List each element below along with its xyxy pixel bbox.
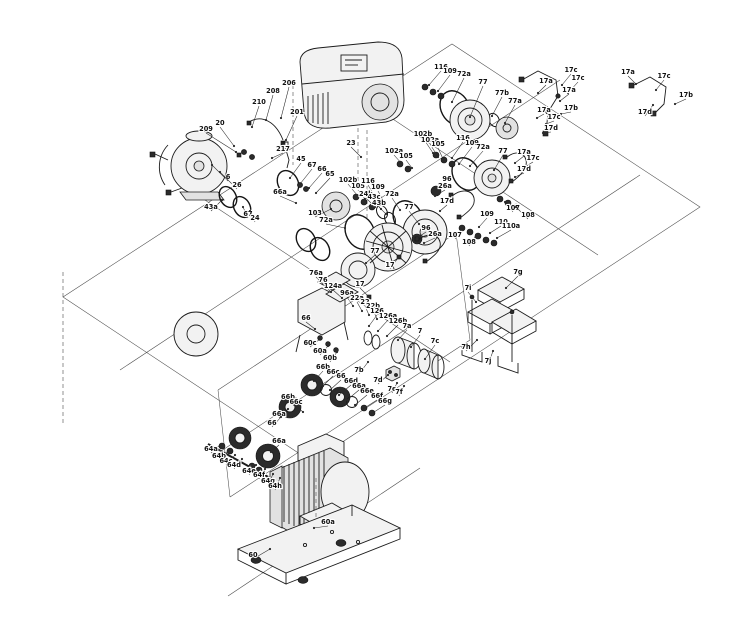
part-number-label: 26 [232,181,242,189]
part-callout-17a: 17a [621,68,637,85]
part-callout-17d: 17d [542,124,558,134]
part-number-label: 107 [448,231,462,239]
part-number-label: 43a [204,203,218,211]
part-number-label: 60 [248,551,258,559]
part-callout-208: 208 [265,87,280,121]
part-number-label: 66a [273,188,287,196]
part-number-label: 17b [679,91,693,99]
part-number-label: 7d [373,376,383,384]
part-number-label: 17c [526,154,539,162]
part-number-label: 66c [289,398,302,406]
part-callout-105: 105 [431,140,445,162]
part-number-label: 66 [267,419,277,427]
part-number-label: 66a [272,437,286,445]
part-number-label: 7c [431,337,440,345]
part-number-label: 109 [480,210,494,218]
part-number-label: 23 [346,139,356,147]
part-callout-66a: 66a [273,188,297,204]
part-number-label: 77a [508,97,522,105]
part-callout-7i: 7i [465,284,478,303]
part-number-label: 72a [319,216,333,224]
part-number-label: 108 [521,211,535,219]
part-number-label: 109 [371,183,385,191]
part-number-label: 17c [564,66,577,74]
part-number-label: 77 [498,147,508,155]
part-number-label: 24 [250,214,260,222]
alignment-frame-lines [63,44,700,596]
part-number-label: 17a [621,68,635,76]
part-number-label: 17 [385,261,395,269]
part-number-label: 17 [355,280,365,288]
part-number-label: 77 [478,78,488,86]
part-callout-24: 24 [249,210,260,222]
part-callout-23: 23 [346,139,362,158]
part-callout-67: 67 [299,161,317,185]
part-number-label: 7f [395,388,403,396]
part-callout-17a: 17a [537,77,553,94]
part-number-label: 17c [571,74,584,82]
part-callout-65: 65 [315,170,335,194]
part-number-label: 77 [404,203,414,211]
part-callout-72a: 72a [385,190,401,211]
part-number-label: 17d [544,124,558,132]
part-number-label: 17b [564,104,578,112]
part-number-label: 7i [465,284,472,292]
part-number-label: 43b [372,199,386,207]
motor-control-head [300,42,404,128]
coupling-guards [462,277,536,373]
part-callouts: 206208210209202012176264567666566a10372a… [199,63,693,559]
part-number-label: 65 [325,170,335,178]
part-number-label: 110a [502,222,520,230]
part-number-label: 217 [276,145,290,153]
part-number-label: 107 [506,204,520,212]
part-callout-17d: 17d [638,104,654,116]
part-callout-210: 210 [251,98,266,128]
part-number-label: 7b [354,366,364,374]
part-callout-201: 201 [285,108,304,141]
part-number-label: 17a [562,86,576,94]
part-number-label: 105 [399,152,413,160]
part-number-label: 17c [657,72,670,80]
part-number-label: 60a [321,518,335,526]
part-number-label: 77 [370,247,380,255]
part-number-label: 201 [290,108,304,116]
part-number-label: 17c [547,113,560,121]
part-callout-17d: 17d [514,165,531,178]
part-callout-7h: 7h [461,339,478,351]
part-number-label: 7h [461,343,471,351]
part-callout-17a: 17a [559,86,576,102]
part-callout-109: 109 [478,210,494,228]
part-number-label: 64h [268,482,282,490]
part-number-label: 6 [226,173,231,181]
part-number-label: 45 [296,155,306,163]
part-number-label: 209 [199,125,213,133]
part-callout-7f: 7f [395,385,405,396]
part-callout-45: 45 [289,155,306,179]
part-callout-7b: 7b [354,361,369,374]
part-number-label: 26a [428,230,442,238]
part-number-label: 26a [438,182,452,190]
part-number-label: 17a [539,77,553,85]
part-number-label: 109 [443,67,457,75]
exploded-parts-diagram: 206208210209202012176264567666566a10372a… [0,0,752,632]
part-callout-17d: 17d [439,197,454,212]
part-number-label: 7 [418,327,423,335]
part-callout-217: 217 [271,145,290,159]
part-number-label: 72a [385,190,399,198]
pump-housing [150,119,289,200]
part-number-label: 66 [301,314,311,322]
part-number-label: 64d [227,461,241,469]
part-number-label: 20 [215,119,225,127]
part-callout-20: 20 [215,119,235,147]
part-number-label: 72a [457,70,471,78]
part-callout-77b: 77b [491,89,509,117]
part-number-label: 7g [513,268,523,276]
part-number-label: 105 [431,140,445,148]
part-number-label: 7a [402,322,411,330]
part-number-label: 108 [462,238,476,246]
part-number-label: 208 [266,87,280,95]
part-callout-17b: 17b [674,91,693,105]
part-number-label: 7j [485,357,492,365]
part-callout-7j: 7j [485,350,495,365]
part-number-label: 67 [307,161,317,169]
part-number-label: 77b [495,89,509,97]
part-number-label: 66g [378,397,392,405]
part-number-label: 17d [440,197,454,205]
part-number-label: 17d [517,165,531,173]
part-number-label: 66a [272,410,286,418]
part-callout-17b: 17b [560,104,578,115]
part-number-label: 206 [282,79,296,87]
part-number-label: 72a [476,143,490,151]
part-number-label: 60c [303,339,316,347]
part-number-label: 60b [323,354,337,362]
part-number-label: 17d [638,108,652,116]
part-number-label: 210 [252,98,266,106]
diagram-canvas: 206208210209202012176264567666566a10372a… [0,0,752,632]
